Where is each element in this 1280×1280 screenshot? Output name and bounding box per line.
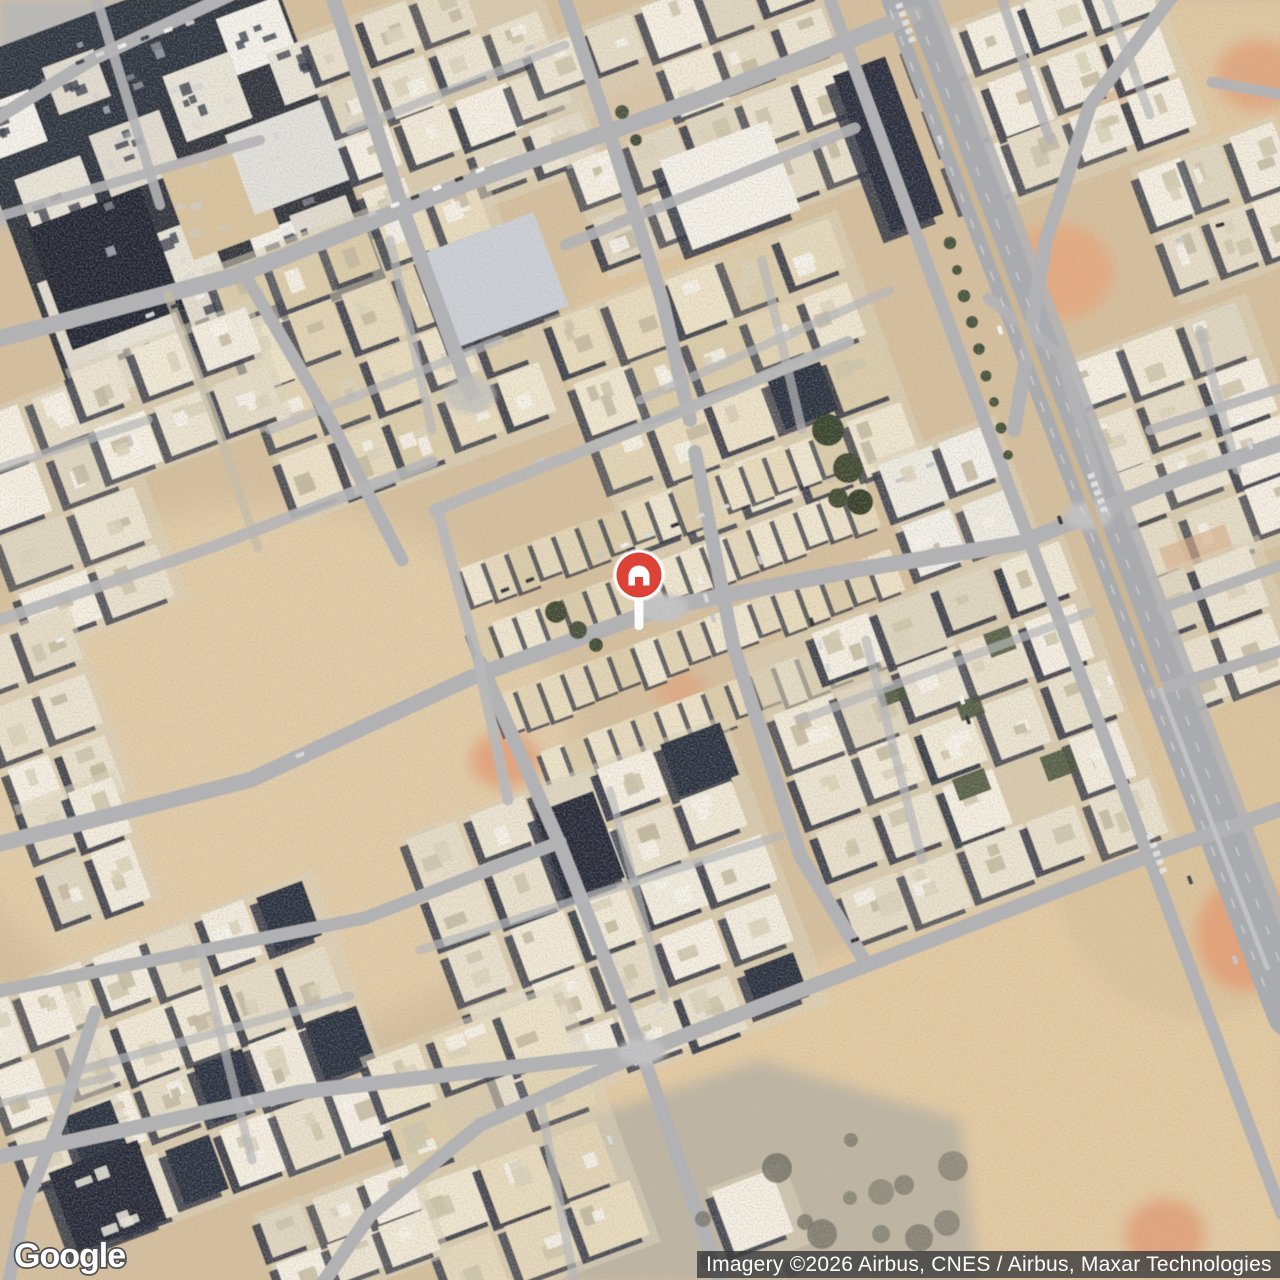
svg-text:Imagery ©2026 Airbus, CNES / A: Imagery ©2026 Airbus, CNES / Airbus, Max…	[706, 1253, 1272, 1276]
svg-text:Google: Google	[14, 1237, 125, 1275]
